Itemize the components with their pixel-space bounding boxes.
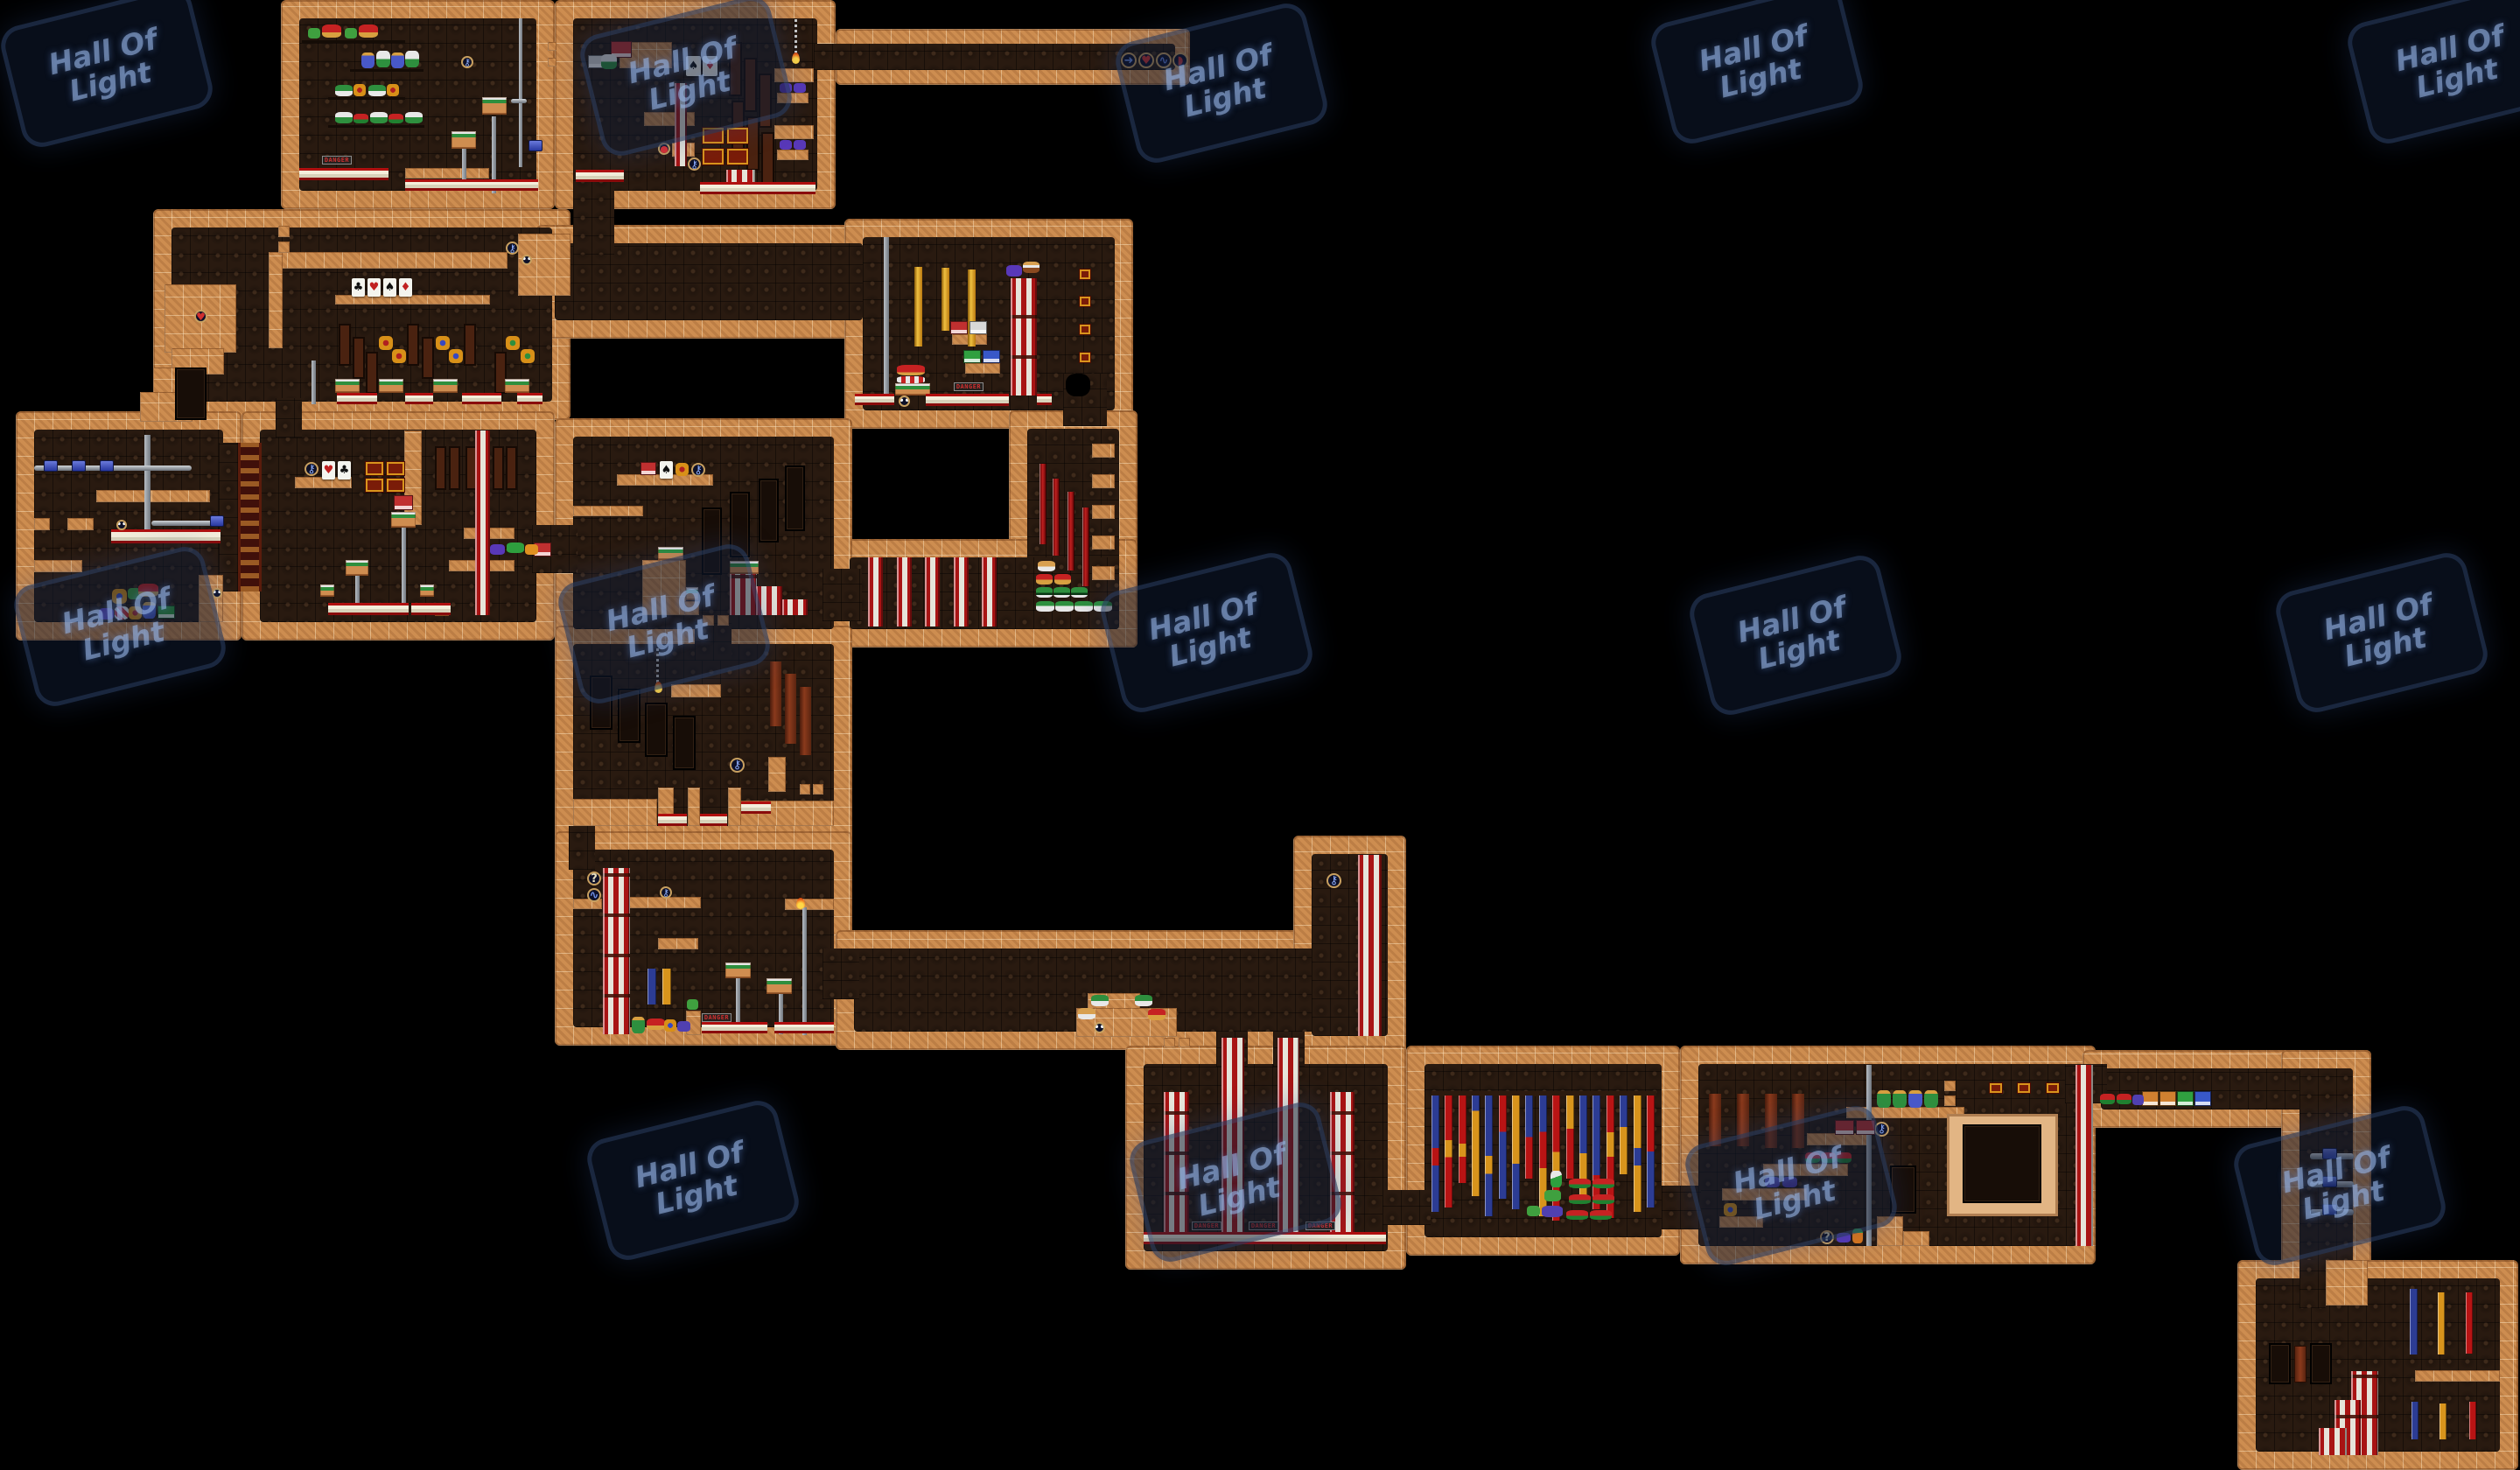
item-icon: ∿ xyxy=(587,888,601,902)
playing-card: ♠ xyxy=(383,278,396,297)
icing-platform xyxy=(702,1022,767,1033)
level-map: DANGERDANGERDANGERDANGERDANGERDANGER♠♦♣♥… xyxy=(0,0,2520,1470)
passage-opening xyxy=(573,171,614,255)
icing-platform xyxy=(299,168,388,180)
food-item xyxy=(1023,262,1039,273)
wall-block xyxy=(67,518,94,530)
food-item xyxy=(2100,1094,2115,1104)
yellow-pole xyxy=(914,267,922,346)
candy-bar xyxy=(2469,1402,2476,1439)
passage-opening xyxy=(814,44,853,70)
floppy-disk xyxy=(394,495,413,510)
playing-card: ♦ xyxy=(399,278,412,297)
candy-bar xyxy=(2466,1292,2473,1354)
striped-column xyxy=(475,430,490,615)
candle-crate xyxy=(505,379,529,393)
chocolate-panel xyxy=(761,132,774,186)
playing-card: ♠ xyxy=(660,461,673,479)
icing-platform xyxy=(517,393,542,404)
gold-crate xyxy=(726,148,749,165)
candle-crate xyxy=(451,131,476,149)
gold-crate xyxy=(1079,352,1091,363)
pipe-valve-icon xyxy=(44,460,58,472)
wall-block xyxy=(34,560,82,572)
wall-recess xyxy=(1963,1124,2041,1203)
wall-block xyxy=(777,150,808,160)
food-item xyxy=(1036,587,1053,598)
food-item xyxy=(794,83,806,93)
gold-crate xyxy=(1989,1082,2003,1094)
chocolate-panel xyxy=(366,352,378,394)
food-item xyxy=(1074,601,1093,612)
wood-pillar xyxy=(1709,1094,1721,1146)
wall-block xyxy=(548,58,556,66)
food-item xyxy=(391,52,404,68)
hall-of-light-watermark: Hall OfLight xyxy=(2343,0,2520,148)
gold-crate xyxy=(365,478,384,493)
food-item xyxy=(1542,1206,1563,1217)
wall-block xyxy=(573,506,643,516)
metal-pole xyxy=(802,907,807,1035)
wall-block xyxy=(1944,1095,1956,1106)
striped-tower xyxy=(782,599,808,615)
icing-platform xyxy=(111,529,220,543)
passage-opening xyxy=(1382,1190,1431,1225)
wall-block xyxy=(2415,1370,2500,1382)
shelf-line xyxy=(328,97,405,100)
passage-opening xyxy=(569,826,595,870)
candy-bar xyxy=(1634,1095,1641,1212)
gold-crate xyxy=(2017,1082,2031,1094)
playing-card: ♣ xyxy=(352,278,365,297)
chocolate-panel xyxy=(407,324,419,366)
wall-recess xyxy=(2269,1343,2291,1384)
wall-recess xyxy=(759,479,779,542)
wall-block xyxy=(548,42,556,51)
wall-block xyxy=(813,784,823,794)
wall-recess xyxy=(175,367,206,420)
striped-column xyxy=(954,557,969,626)
food-item xyxy=(1527,1206,1540,1216)
food-item xyxy=(897,376,925,383)
ladder xyxy=(238,443,262,591)
floppy-disk xyxy=(963,350,981,363)
wall-block xyxy=(728,787,741,826)
wall-block xyxy=(34,518,50,530)
food-item xyxy=(370,112,388,123)
wall-recess xyxy=(645,703,668,757)
food-item xyxy=(1550,1171,1562,1187)
candy-bar xyxy=(2439,1403,2446,1439)
wall-block xyxy=(573,799,657,826)
item-icon: ⚷ xyxy=(461,56,473,68)
wood-pillar xyxy=(770,661,781,726)
pipe xyxy=(151,521,216,526)
candy-bar xyxy=(1053,479,1060,556)
food-item xyxy=(521,349,535,363)
shelf-line xyxy=(350,69,423,72)
candy-bar xyxy=(1459,1095,1466,1183)
food-item xyxy=(1590,1210,1612,1220)
food-item xyxy=(1544,1190,1561,1201)
item-icon: •• xyxy=(116,520,127,530)
chocolate-panel xyxy=(449,446,460,490)
passage-opening xyxy=(822,569,862,621)
food-item xyxy=(405,112,423,123)
hall-of-light-watermark: Hall OfLight xyxy=(1685,551,1906,719)
item-icon: ⚷ xyxy=(688,157,701,171)
candy-bar xyxy=(1431,1095,1439,1212)
food-item xyxy=(353,84,366,96)
candy-bar xyxy=(2438,1292,2445,1354)
gold-crate xyxy=(702,148,724,165)
candle-crate xyxy=(433,379,458,393)
food-item xyxy=(345,28,357,38)
pipe-valve-icon xyxy=(528,140,542,151)
food-item xyxy=(1135,995,1152,1006)
food-item xyxy=(335,85,353,96)
candy-bar xyxy=(2411,1402,2418,1439)
item-icon: ⚷ xyxy=(691,463,705,477)
icing-platform xyxy=(855,394,894,405)
gold-crate xyxy=(1079,324,1091,335)
floppy-disk xyxy=(950,321,968,334)
food-item xyxy=(436,336,450,350)
icing-platform xyxy=(576,170,624,182)
item-icon: ⚷ xyxy=(506,241,519,255)
candy-bar xyxy=(1039,464,1046,544)
metal-pole xyxy=(144,435,150,531)
item-icon: ? xyxy=(587,871,601,885)
hall-of-light-watermark: Hall OfLight xyxy=(0,0,217,151)
hall-of-light-watermark: Hall OfLight xyxy=(1111,0,1332,167)
pipe-valve-icon xyxy=(210,515,224,527)
food-item xyxy=(392,349,406,363)
item-icon: ♥ xyxy=(194,310,207,323)
striped-column xyxy=(2075,1065,2093,1246)
yellow-pole xyxy=(968,269,976,346)
striped-tower xyxy=(603,868,630,1034)
danger-sign: DANGER xyxy=(702,1013,731,1022)
striped-column xyxy=(925,557,940,626)
candy-bar xyxy=(1445,1095,1452,1207)
wall-recess xyxy=(785,465,805,531)
candy-bar xyxy=(1499,1095,1507,1199)
icing-platform xyxy=(337,393,377,404)
icing-platform xyxy=(405,393,433,404)
food-item xyxy=(1592,1179,1614,1188)
wall-block xyxy=(965,363,1000,374)
shelf-line xyxy=(302,40,405,43)
icing-platform xyxy=(328,603,409,615)
food-item xyxy=(1071,587,1088,598)
floppy-disk xyxy=(2194,1091,2211,1106)
candy-bar xyxy=(1566,1095,1574,1179)
metal-pole xyxy=(884,237,889,395)
wall-block xyxy=(1944,1081,1956,1091)
icing-platform xyxy=(405,179,538,191)
item-icon: ⚷ xyxy=(304,462,318,476)
food-item xyxy=(387,84,399,96)
chocolate-panel xyxy=(506,446,517,490)
food-item xyxy=(1055,601,1074,612)
wall-block xyxy=(405,168,489,178)
chain xyxy=(794,18,797,53)
wall-block xyxy=(1903,1231,1929,1246)
item-icon: ⚷ xyxy=(660,886,672,899)
pipe-valve-icon xyxy=(72,460,86,472)
wall-block xyxy=(96,490,210,502)
striped-column xyxy=(1358,855,1382,1036)
food-item xyxy=(1054,574,1071,584)
wood-pillar xyxy=(785,674,796,744)
wall-block xyxy=(671,684,721,697)
item-icon: •• xyxy=(899,395,910,407)
candy-bar xyxy=(1620,1095,1627,1174)
food-item xyxy=(1908,1090,1922,1108)
playing-card: ♣ xyxy=(338,461,351,479)
chocolate-panel xyxy=(339,324,351,366)
candy-bar xyxy=(647,969,656,1004)
chocolate-panel xyxy=(353,337,365,379)
candle-crate xyxy=(335,379,360,393)
item-icon: •• xyxy=(521,255,532,265)
flame-icon xyxy=(792,52,800,64)
food-item xyxy=(376,51,390,67)
candy-bar xyxy=(1485,1095,1493,1216)
passage-opening xyxy=(822,948,859,999)
icing-platform xyxy=(411,603,451,615)
wall-block xyxy=(658,938,698,949)
food-item xyxy=(1036,601,1054,612)
metal-pole xyxy=(311,360,316,404)
exit-hole xyxy=(1066,374,1090,396)
food-item xyxy=(675,463,689,476)
candle-crate xyxy=(895,383,930,395)
food-item xyxy=(1053,587,1070,598)
floppy-disk xyxy=(2159,1091,2176,1106)
wall-block xyxy=(1092,566,1115,580)
hall-of-light-watermark: Hall OfLight xyxy=(583,1096,803,1264)
wall-recess xyxy=(673,716,696,770)
food-item xyxy=(359,24,378,38)
chocolate-panel xyxy=(435,446,446,490)
food-item xyxy=(1078,1008,1095,1019)
food-item xyxy=(1569,1194,1591,1204)
food-item xyxy=(632,1017,645,1033)
wall-block xyxy=(269,252,283,348)
candle-crate xyxy=(346,560,368,576)
icing-platform xyxy=(700,182,815,194)
food-item xyxy=(677,1021,690,1032)
wall-block xyxy=(800,784,810,794)
yellow-pole xyxy=(941,268,949,331)
striped-column xyxy=(897,557,912,626)
food-item xyxy=(1924,1090,1938,1108)
danger-sign: DANGER xyxy=(954,382,983,391)
icing-platform xyxy=(700,814,727,826)
gold-crate xyxy=(1079,296,1091,307)
wall-block xyxy=(688,787,700,826)
food-item xyxy=(2132,1095,2144,1105)
candy-bar xyxy=(1552,1095,1560,1221)
gold-crate xyxy=(386,461,405,476)
candy-bar xyxy=(1592,1095,1600,1209)
food-item xyxy=(368,85,386,96)
candle-crate xyxy=(379,379,403,393)
candy-bar xyxy=(1647,1095,1655,1207)
wall-block xyxy=(1092,444,1115,458)
food-item xyxy=(1148,1009,1165,1020)
food-item xyxy=(1592,1194,1614,1204)
food-item xyxy=(664,1019,676,1032)
food-item xyxy=(361,52,374,68)
wall-block xyxy=(768,757,786,792)
food-item xyxy=(897,365,925,375)
food-item xyxy=(687,999,698,1010)
food-item xyxy=(647,1018,665,1030)
wood-pillar xyxy=(800,687,811,755)
icing-platform xyxy=(774,1022,834,1033)
item-icon: ⚷ xyxy=(1326,873,1341,888)
food-item xyxy=(1566,1210,1588,1220)
icing-platform xyxy=(658,814,687,826)
food-item xyxy=(322,24,341,38)
floppy-disk xyxy=(983,350,1000,363)
food-item xyxy=(507,542,524,553)
passage-opening xyxy=(276,398,302,437)
flame-icon xyxy=(796,898,805,909)
striped-column xyxy=(868,557,883,626)
item-icon: •• xyxy=(1094,1022,1105,1033)
food-item xyxy=(2117,1094,2131,1104)
food-item xyxy=(1893,1090,1907,1108)
chocolate-panel xyxy=(464,324,476,366)
candle-crate xyxy=(482,97,507,115)
food-item xyxy=(1091,995,1109,1006)
floppy-disk xyxy=(2177,1091,2194,1106)
food-item xyxy=(308,28,320,38)
food-item xyxy=(388,114,403,123)
candle-crate xyxy=(766,978,792,994)
floppy-disk xyxy=(640,462,656,475)
playing-card: ♥ xyxy=(322,461,335,479)
wall-recess xyxy=(2310,1343,2332,1384)
candy-bar xyxy=(2410,1289,2418,1354)
striped-column xyxy=(982,557,997,626)
food-item xyxy=(1877,1090,1891,1108)
food-item xyxy=(525,544,538,555)
candy-bar xyxy=(1082,507,1089,586)
corridor-row2-interior xyxy=(555,243,863,320)
candle-crate xyxy=(725,962,751,978)
gold-crate xyxy=(365,461,384,476)
candle-crate xyxy=(320,584,334,597)
candle-crate xyxy=(391,512,416,528)
icing-platform xyxy=(741,801,771,814)
pipe-valve-icon xyxy=(100,460,114,472)
wall-block xyxy=(1092,535,1115,549)
icing-platform xyxy=(462,393,501,404)
food-item xyxy=(449,349,463,363)
wall-block xyxy=(1164,1038,1175,1047)
pipe xyxy=(511,99,527,103)
food-item xyxy=(353,114,368,123)
wall-block xyxy=(1179,1038,1190,1047)
candy-bar xyxy=(1472,1095,1480,1196)
candle-crate xyxy=(420,584,434,597)
wall-block xyxy=(2326,1260,2368,1305)
passage-opening xyxy=(2299,1260,2326,1308)
food-item xyxy=(794,140,806,150)
candy-bar xyxy=(1067,492,1074,570)
food-item xyxy=(1006,265,1022,276)
wall-block xyxy=(404,430,422,525)
wall-block xyxy=(774,125,814,139)
hall-of-light-watermark: Hall OfLight xyxy=(2271,549,2492,717)
wooden-door xyxy=(2294,1346,2306,1382)
candy-bar xyxy=(1512,1095,1520,1209)
food-item xyxy=(490,544,505,555)
wall-block xyxy=(278,226,290,237)
danger-sign: DANGER xyxy=(322,156,352,164)
chocolate-panel xyxy=(493,446,504,490)
chocolate-panel xyxy=(422,337,434,379)
wall-block xyxy=(1092,505,1115,519)
icing-platform xyxy=(1037,394,1052,405)
striped-tower xyxy=(1011,278,1037,395)
food-item xyxy=(1569,1179,1591,1188)
gold-crate xyxy=(726,127,749,144)
wall-block xyxy=(269,252,507,269)
gold-crate xyxy=(2046,1082,2060,1094)
candy-bar xyxy=(662,969,671,1004)
food-item xyxy=(379,336,393,350)
food-item xyxy=(405,51,419,67)
metal-pole xyxy=(402,528,406,615)
wall-block xyxy=(785,899,834,910)
shelf-line xyxy=(328,125,424,128)
gold-crate xyxy=(1079,269,1091,280)
food-item xyxy=(780,140,792,150)
floppy-disk xyxy=(969,321,987,334)
hall-of-light-watermark: Hall OfLight xyxy=(1647,0,1867,148)
food-item xyxy=(1038,561,1055,571)
striped-tower xyxy=(2319,1428,2347,1455)
food-item xyxy=(506,336,520,350)
metal-pole xyxy=(519,18,522,167)
wall-block xyxy=(278,241,290,253)
food-item xyxy=(335,112,353,123)
gold-crate xyxy=(386,478,405,493)
wall-block xyxy=(1092,474,1115,488)
item-icon: ⚷ xyxy=(730,758,745,773)
food-item xyxy=(1036,574,1053,584)
icing-platform xyxy=(926,394,1009,406)
candy-bar xyxy=(1525,1095,1533,1179)
floppy-disk xyxy=(2142,1091,2159,1106)
playing-card: ♥ xyxy=(367,278,381,297)
